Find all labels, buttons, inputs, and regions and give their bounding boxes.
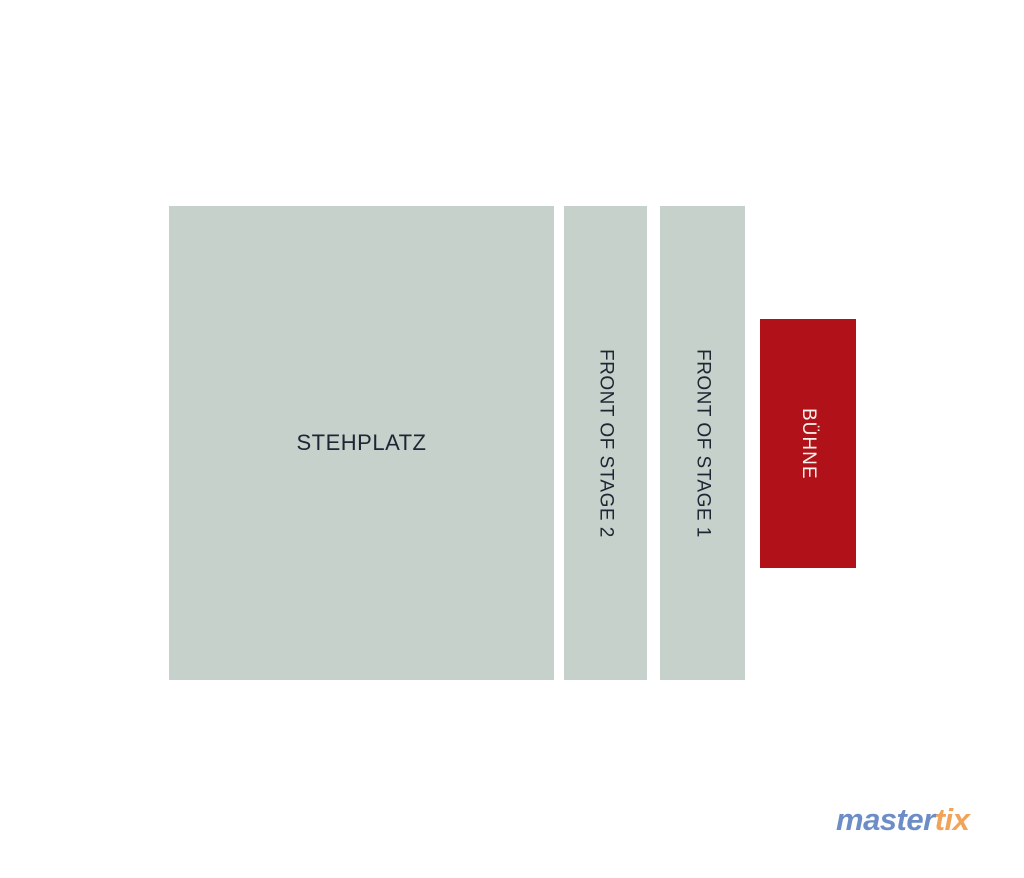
mastertix-logo-tix-part: tix [935, 802, 970, 837]
seat-area-stehplatz[interactable]: STEHPLATZ [169, 206, 554, 680]
mastertix-logo: mastertix [836, 802, 969, 838]
mastertix-logo-master-part: master [836, 802, 935, 837]
seat-area-stehplatz-label: STEHPLATZ [296, 430, 426, 456]
seat-area-front-of-stage-1[interactable]: FRONT OF STAGE 1 [660, 206, 745, 680]
seat-area-front-of-stage-2[interactable]: FRONT OF STAGE 2 [564, 206, 647, 680]
venue-seating-map: STEHPLATZ FRONT OF STAGE 2 FRONT OF STAG… [0, 0, 1024, 878]
seat-area-front-of-stage-2-label: FRONT OF STAGE 2 [595, 349, 617, 538]
stage-block-buehne-label: BÜHNE [797, 408, 819, 480]
stage-block-buehne: BÜHNE [760, 319, 856, 568]
seat-area-front-of-stage-1-label: FRONT OF STAGE 1 [692, 349, 714, 538]
